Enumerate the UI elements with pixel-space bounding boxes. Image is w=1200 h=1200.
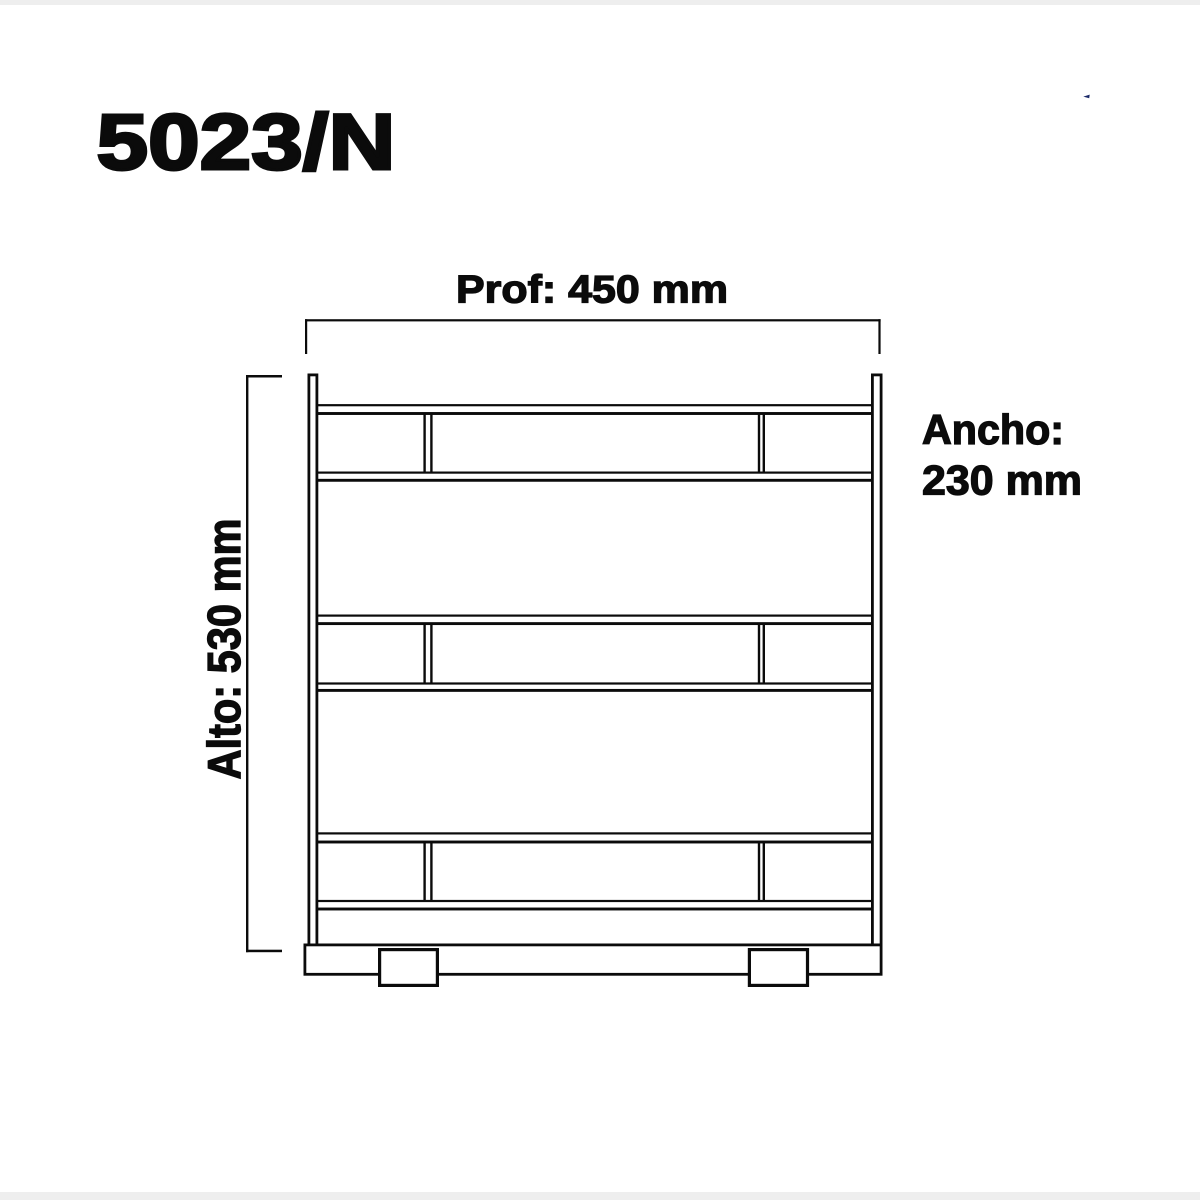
svg-text:230 mm: 230 mm bbox=[922, 456, 1082, 503]
svg-text:Alto: 530 mm: Alto: 530 mm bbox=[198, 519, 250, 780]
svg-text:5023/N: 5023/N bbox=[97, 97, 396, 186]
svg-text:Ancho:: Ancho: bbox=[922, 406, 1064, 453]
svg-text:Prof: 450 mm: Prof: 450 mm bbox=[456, 269, 728, 312]
